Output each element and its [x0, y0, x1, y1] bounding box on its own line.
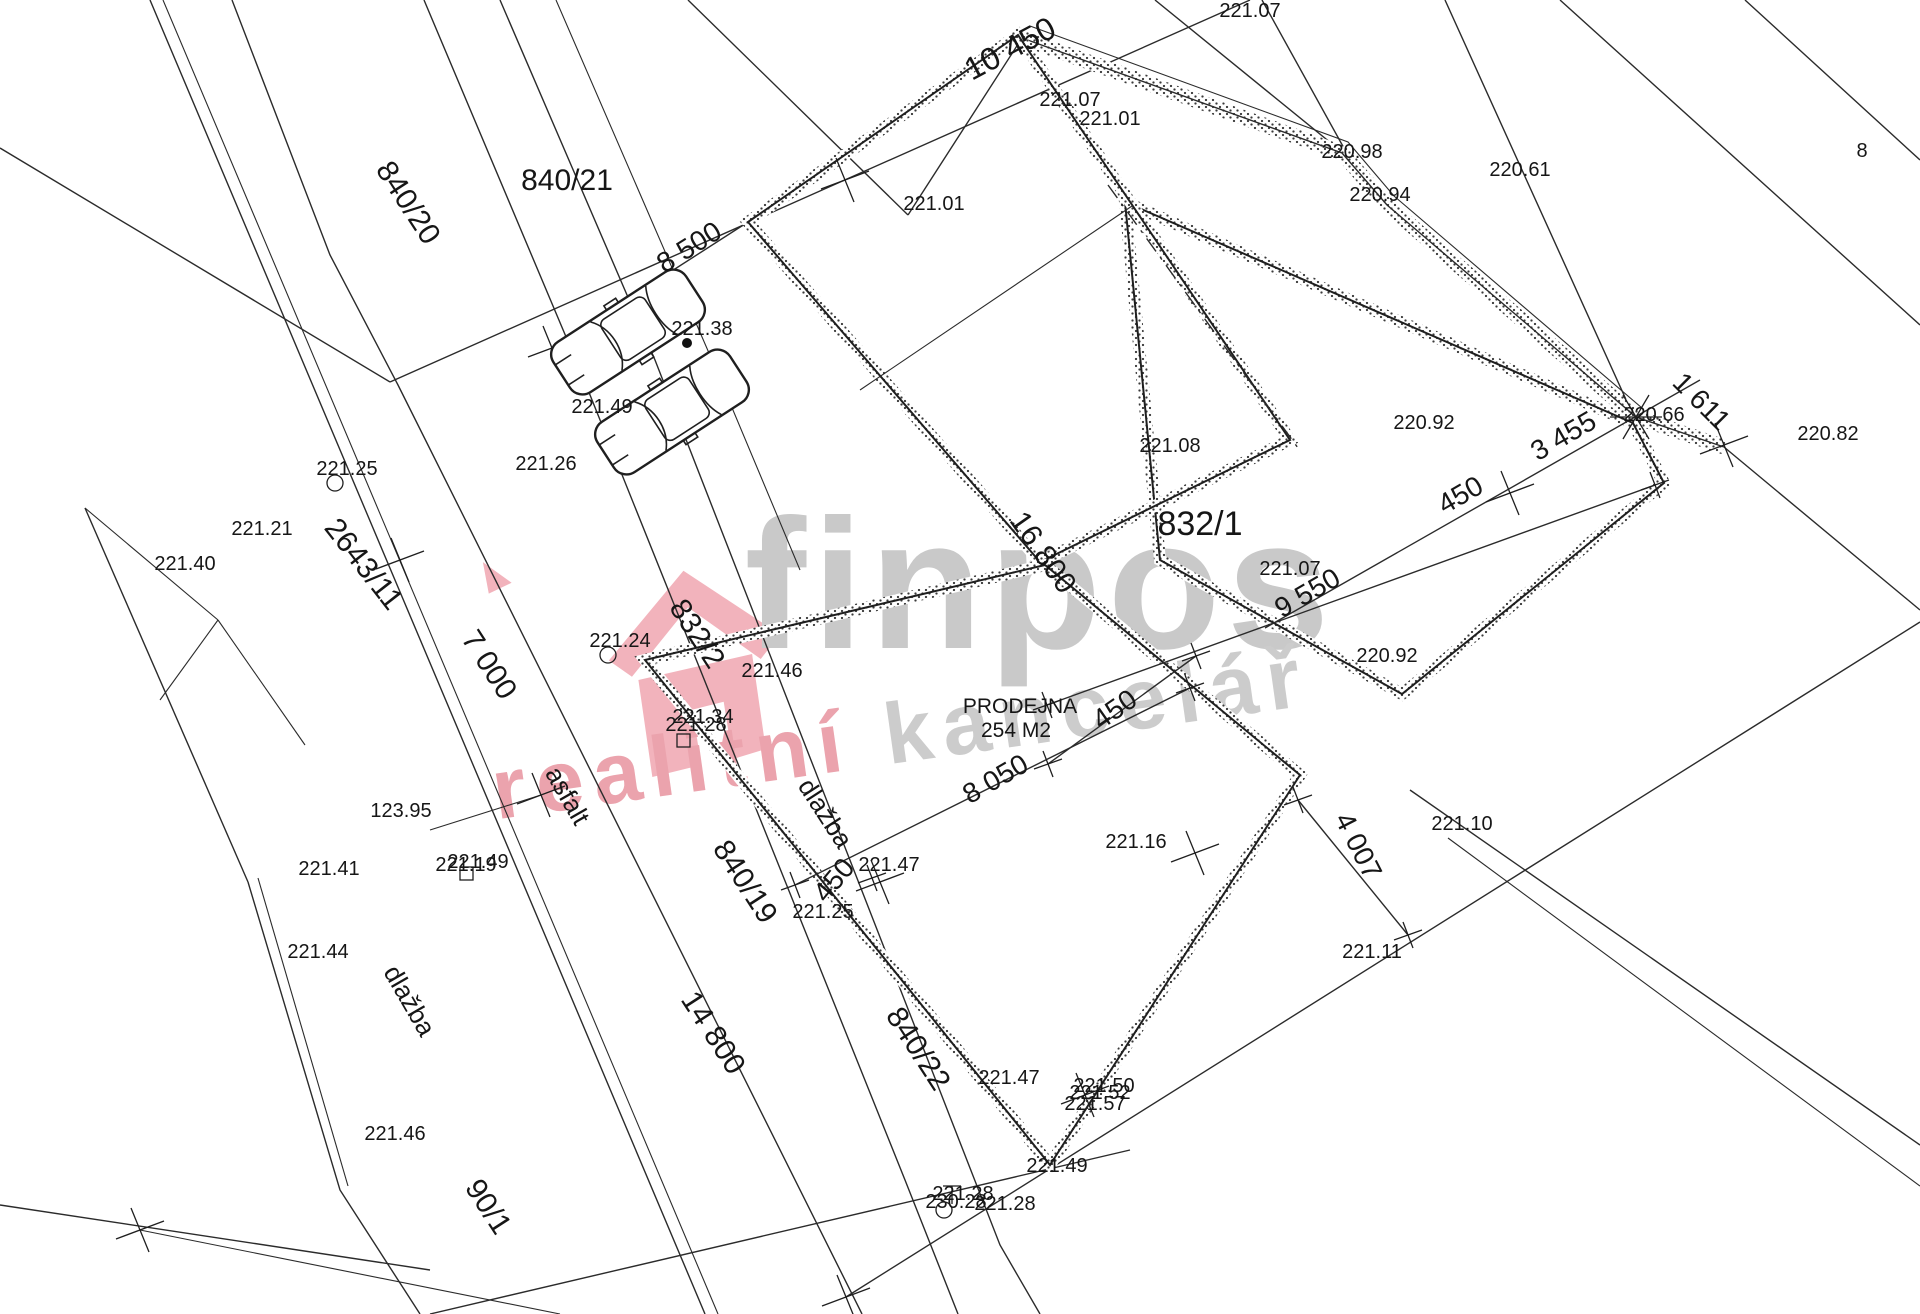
elevation-point-label: 220.61	[1489, 159, 1550, 181]
parcel-number-label: 840/22	[879, 1001, 957, 1096]
elevation-point-label: 221.28	[665, 714, 726, 736]
elevation-point-label: 221.46	[741, 660, 802, 682]
elevation-point-label: 221.10	[1431, 813, 1492, 835]
parcel-number-label: 2643/11	[318, 512, 409, 616]
elevation-point-label: 221.47	[978, 1067, 1039, 1089]
elevation-point-label: 221.40	[154, 553, 215, 575]
elevation-point-label: 221.44	[287, 941, 348, 963]
elevation-point-label: 220.92	[1356, 645, 1417, 667]
parcel-number-label: 832/1	[1157, 505, 1242, 543]
elevation-point-label: 221.46	[364, 1123, 425, 1145]
elevation-point-label: 123.95	[370, 800, 431, 822]
elevation-point-label: 221.49	[1026, 1155, 1087, 1177]
elevation-point-label: 220.92	[1393, 412, 1454, 434]
elevation-point-label: 221.47	[858, 854, 919, 876]
parcel-number-label: 840/20	[369, 155, 447, 250]
parcel-number-label: 90/1	[458, 1173, 517, 1240]
elevation-point-label: 220.98	[1321, 141, 1382, 163]
dimension-label: 14 800	[674, 985, 752, 1080]
dimension-label: 4 007	[1329, 807, 1388, 884]
elevation-point-label: 221.01	[903, 193, 964, 215]
elevation-point-label: 221.21	[231, 518, 292, 540]
parked-cars	[543, 260, 758, 485]
dimension-label: 450	[807, 852, 861, 908]
elevation-point-label: 221.07	[1219, 0, 1280, 22]
building-info-label: 254 M2	[981, 719, 1051, 742]
elevation-point-label: 221.01	[1079, 108, 1140, 130]
elevation-point-label: 220.82	[1797, 423, 1858, 445]
elevation-point-label: 221.28	[974, 1193, 1035, 1215]
elevation-point-label: 221.07	[1259, 558, 1320, 580]
parcel-number-label: 840/21	[521, 164, 613, 197]
elevation-point-label: 221.57	[1064, 1093, 1125, 1115]
elevation-point-label: 221.08	[1139, 435, 1200, 457]
elevation-point-label: 221.41	[298, 858, 359, 880]
building-info-label: PRODEJNA	[963, 695, 1077, 718]
elevation-point-label: 221.49	[447, 851, 508, 873]
elevation-point-label: 221.49	[571, 396, 632, 418]
elevation-point-label: 220.94	[1349, 184, 1410, 206]
elevation-point-label: 221.25	[316, 458, 377, 480]
site-plan-svg: finpos realitní kancelář	[0, 0, 1920, 1314]
elevation-point-label: 221.24	[589, 630, 650, 652]
elevation-point-label: 221.38	[671, 318, 732, 340]
dimension-label: 8 500	[651, 215, 727, 278]
elevation-point-label: 8	[1856, 140, 1867, 162]
elevation-point-label: 221.11	[1342, 941, 1402, 963]
dimension-label: 450	[1432, 470, 1488, 520]
dimension-label: 7 000	[455, 624, 524, 705]
elevation-point-label: 221.16	[1105, 831, 1166, 853]
site-plan: finpos realitní kancelář	[0, 0, 1920, 1314]
elevation-point-label: 221.25	[792, 901, 853, 923]
surface-type-label: dlažba	[378, 960, 443, 1042]
elevation-point-label: 220.66	[1623, 404, 1684, 426]
elevation-point-label: 221.26	[515, 453, 576, 475]
